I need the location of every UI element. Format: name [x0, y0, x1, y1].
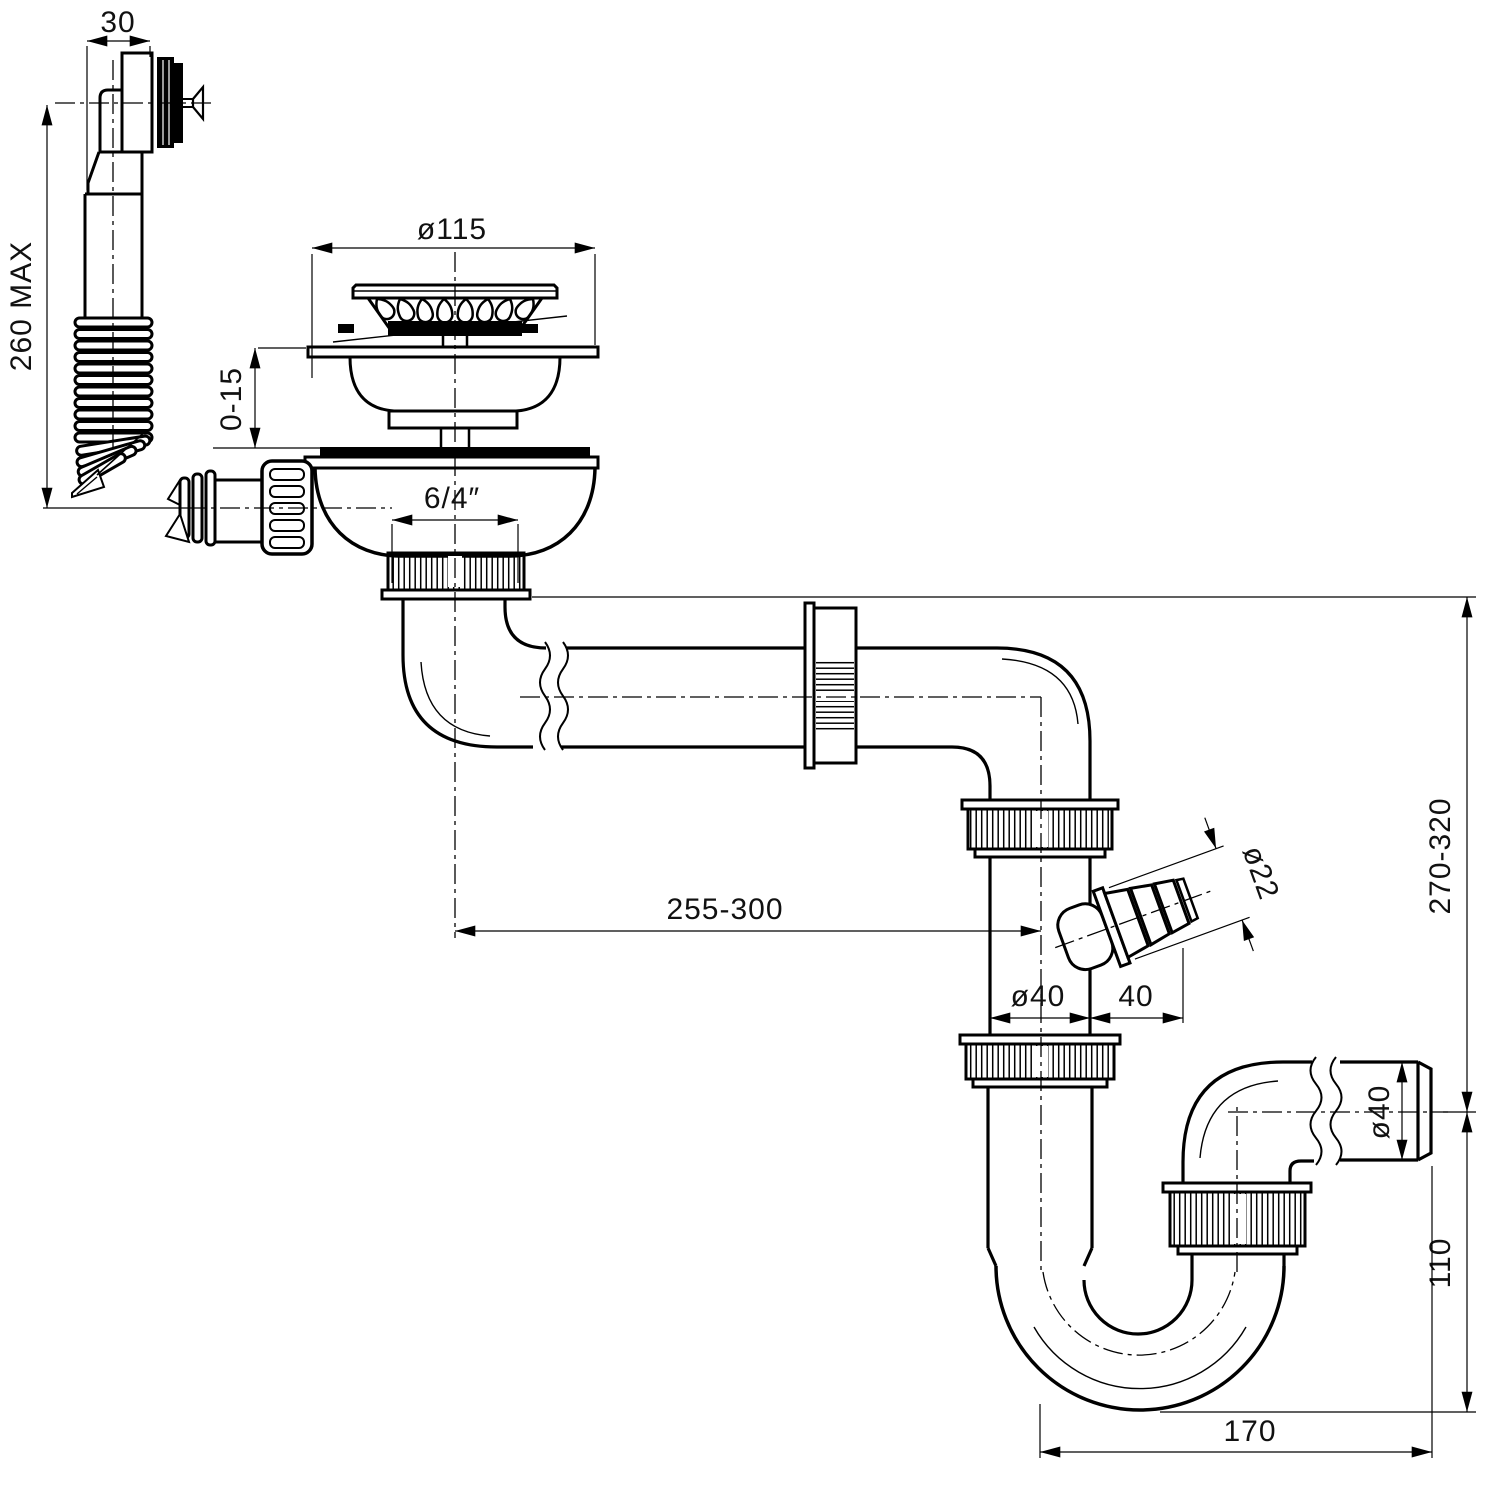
dim-text: 255-300 — [666, 893, 783, 926]
drain-elbow-inner — [505, 599, 546, 648]
dim-horizontal-offset: 255-300 — [455, 893, 1041, 931]
hose-tail-tip-upper — [168, 480, 180, 505]
dim-text: ø40 — [1363, 1085, 1396, 1140]
dim-text: 270-320 — [1424, 797, 1457, 914]
trap-nut-lip — [973, 1079, 1107, 1087]
riser-elbow-inner — [952, 747, 990, 800]
sink-siphon-technical-drawing: ø22 — [0, 0, 1500, 1500]
piping: ø22 — [403, 599, 1431, 1410]
dim-text: 40 — [1118, 980, 1153, 1013]
dim-trap-depth: 110 — [1160, 1112, 1476, 1412]
trap-nut-highlight — [1032, 1046, 1048, 1077]
pipe-break-line — [540, 642, 550, 750]
dim-branch-diameter: ø22 — [1236, 842, 1286, 905]
dim-text: ø115 — [417, 213, 487, 246]
outlet-break-line — [1311, 1057, 1322, 1165]
branch-dim-arrow-top — [1205, 818, 1216, 849]
dim-text: 260 MAX — [5, 241, 38, 371]
overflow-side-block — [100, 90, 122, 152]
dim-text: 110 — [1424, 1238, 1457, 1289]
overflow-neck-left — [88, 152, 99, 194]
trap-u-centerline — [1043, 1272, 1235, 1355]
dim-text: 6/4″ — [424, 482, 480, 515]
pipe-break-line — [558, 642, 568, 750]
basket-pin-right — [520, 324, 538, 333]
trap-tube-taper — [988, 1248, 1092, 1266]
cup-step-ring — [389, 411, 517, 428]
riser-elbow-outer — [997, 648, 1090, 800]
centerlines — [55, 60, 1448, 1355]
outlet-elbow-inner — [1290, 1161, 1314, 1183]
trap-u-reflect-line — [1034, 1327, 1246, 1389]
dim-sink-thickness: 0-15 — [213, 348, 320, 448]
dim-outlet-diameter: ø40 — [1363, 1062, 1402, 1160]
technical-drawing-page: ø22 — [0, 0, 1500, 1500]
inlet-pipe — [215, 480, 262, 542]
sink-flange — [308, 347, 598, 357]
dim-text: 170 — [1223, 1415, 1276, 1448]
trap-inlet-tube — [988, 1087, 1092, 1248]
dim-riser-diameter: ø40 — [990, 980, 1090, 1018]
lower-flange — [305, 457, 598, 468]
branch-dim-arrow-bottom — [1242, 920, 1253, 951]
outlet-elbow-reflect-line — [1200, 1081, 1278, 1158]
dim-text: ø40 — [1011, 980, 1066, 1013]
riser-nut-lip — [975, 849, 1105, 857]
dim-text: 30 — [100, 6, 135, 39]
basket-pin-left — [338, 324, 354, 333]
riser-nut-highlight — [1032, 811, 1048, 847]
trap-u-inner — [1084, 1280, 1192, 1334]
outlet-nut-highlight — [1230, 1194, 1246, 1244]
dim-text: 0-15 — [215, 367, 248, 431]
trap-outlet-tube — [1192, 1253, 1284, 1280]
strainer-assembly — [166, 285, 598, 599]
overflow-assembly — [72, 53, 203, 497]
outlet-pipe-chamfer — [1418, 1062, 1431, 1160]
drain-nut-flange — [382, 590, 530, 599]
outlet-break-line — [1331, 1057, 1342, 1165]
